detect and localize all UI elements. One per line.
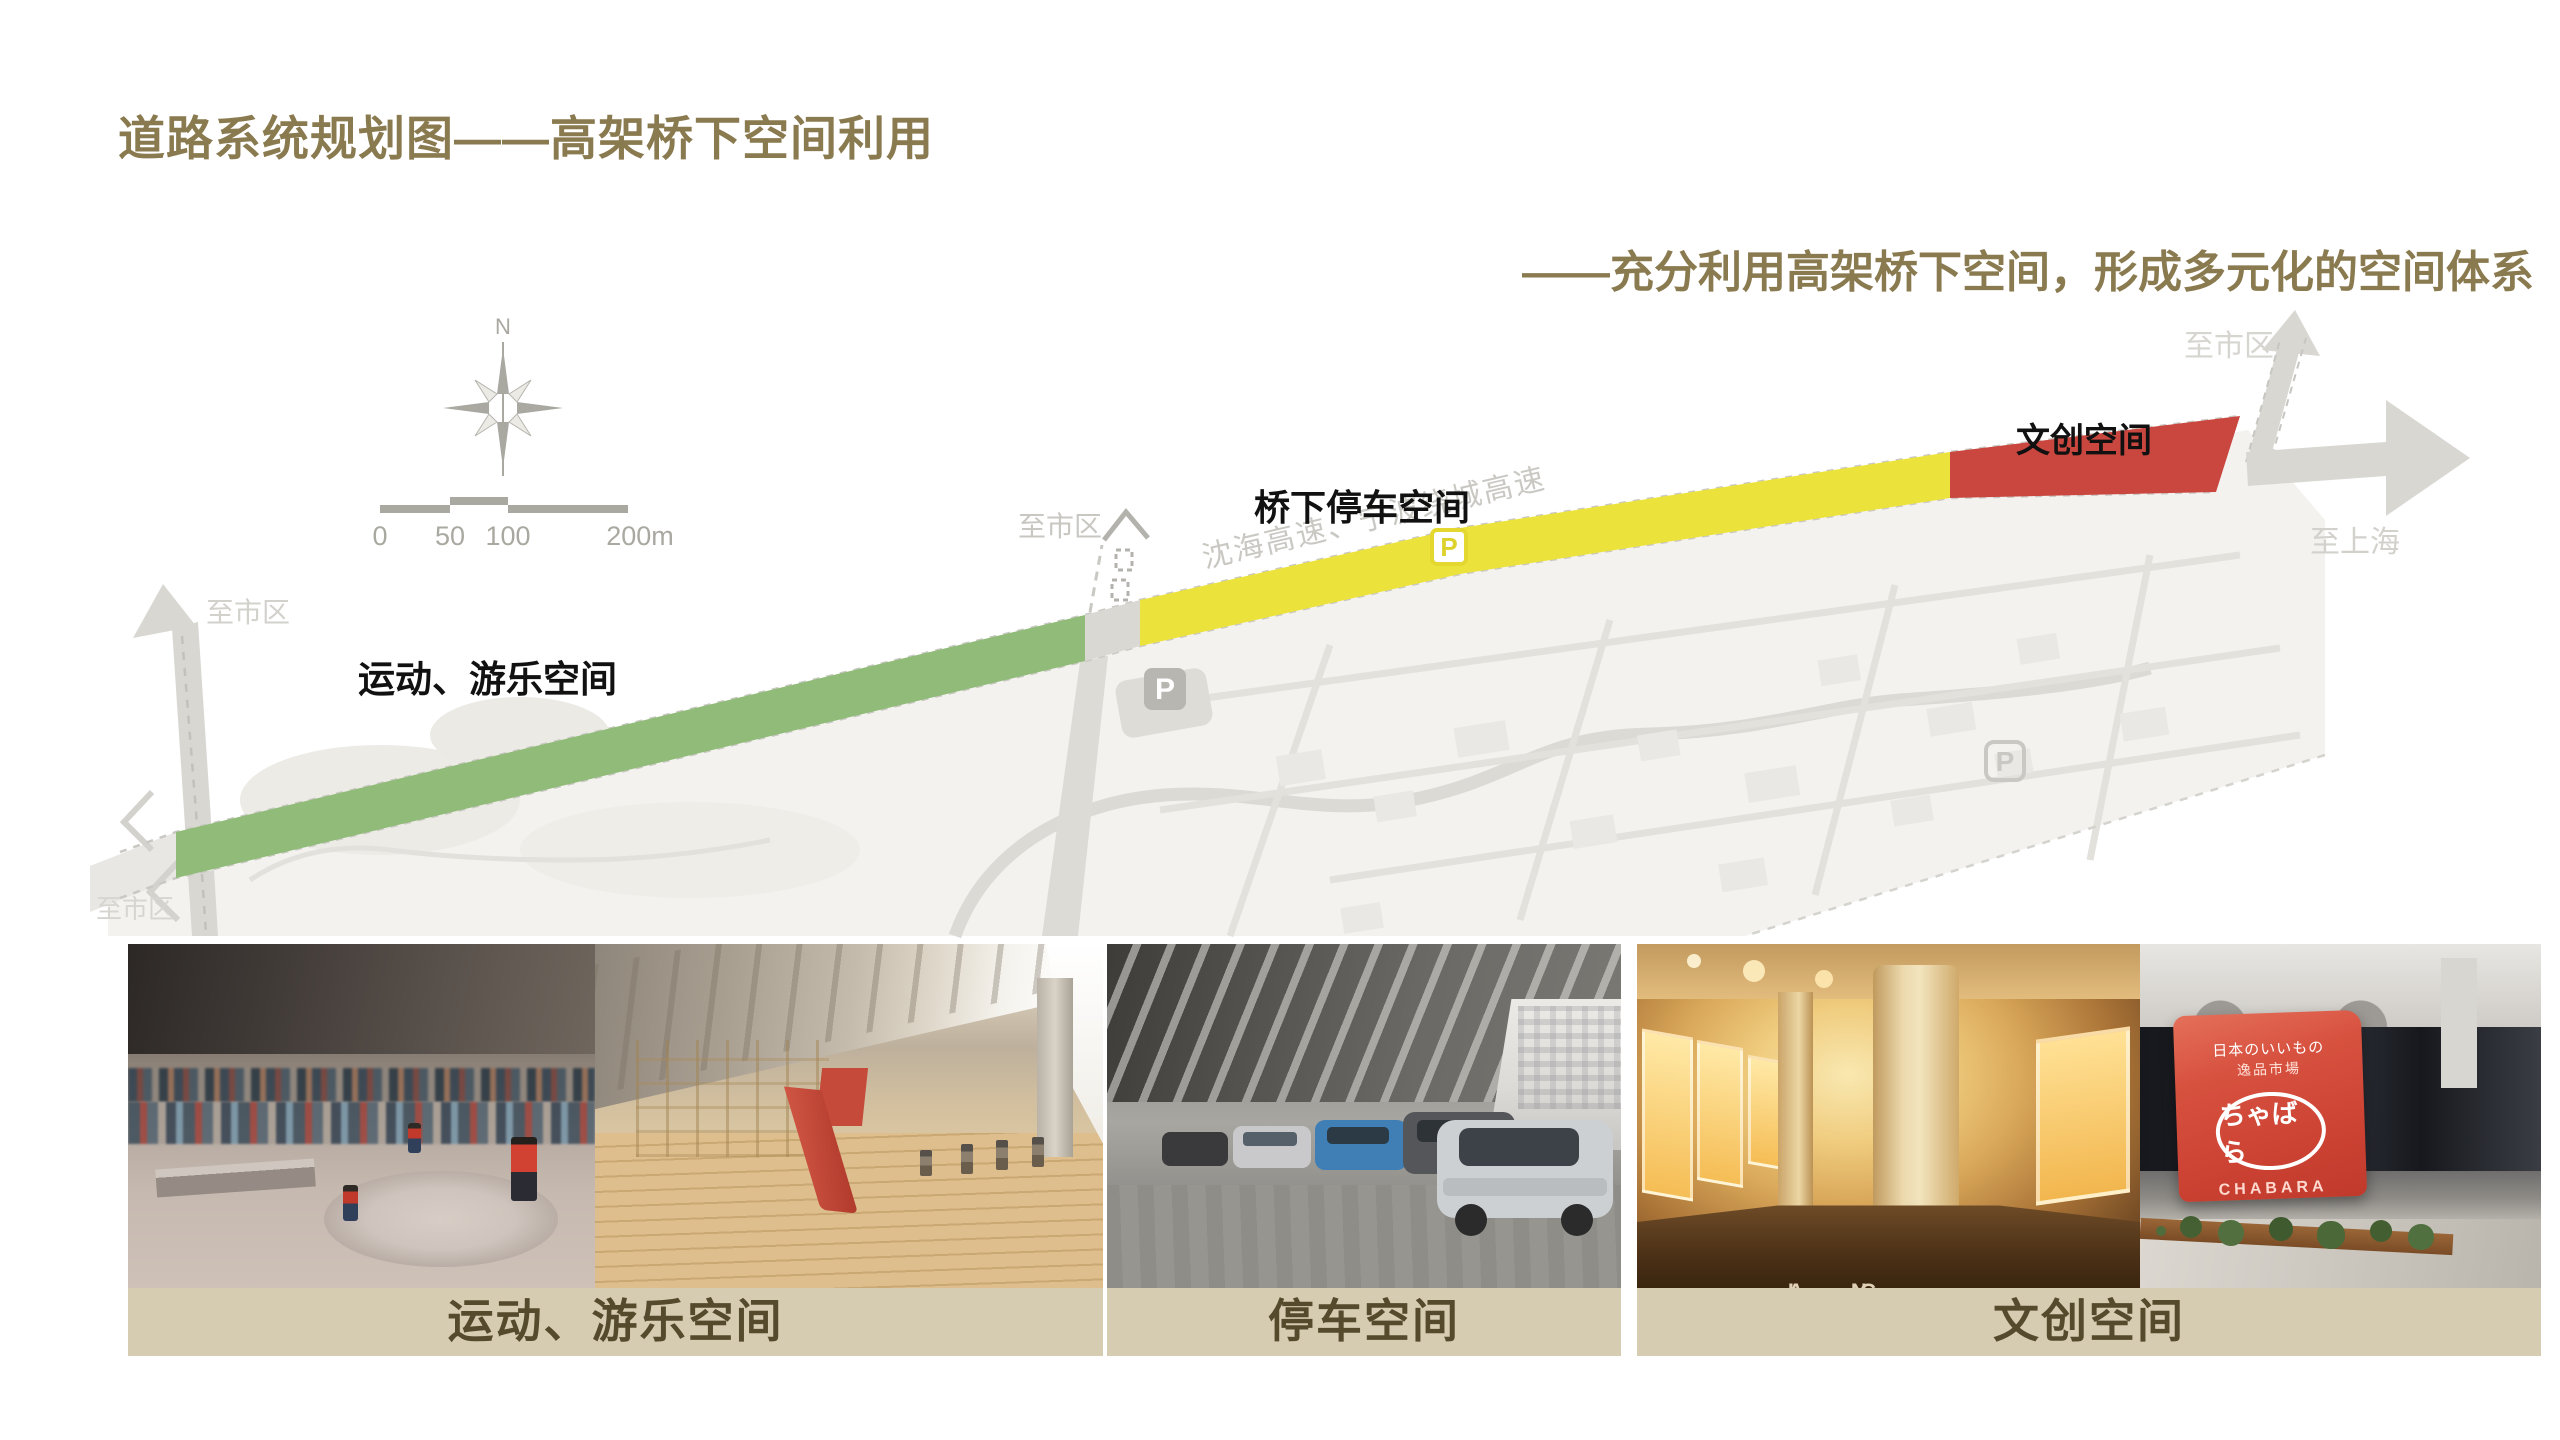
panel-parking: 停车空间: [1107, 944, 1621, 1356]
direction-label-left: 至市区: [206, 597, 290, 628]
photo-figure: [511, 1137, 537, 1201]
caption-parking: 停车空间: [1107, 1288, 1621, 1356]
photo-storefront-glow: [1697, 1040, 1743, 1188]
svg-text:200m: 200m: [606, 521, 674, 551]
label-cultural-space: 文创空间: [2016, 422, 2152, 460]
label-sport-space: 运动、游乐空间: [358, 659, 617, 700]
photo-texture: [128, 1068, 595, 1102]
svg-text:P: P: [1155, 673, 1175, 706]
panel-parking-photos: [1107, 944, 1621, 1288]
photo-figure: [1032, 1137, 1044, 1167]
direction-label-middle: 至市区: [1018, 511, 1102, 542]
photo-texture: [128, 944, 595, 1054]
photo-storefront-glow: [1642, 1029, 1693, 1202]
photo-texture: [1637, 1205, 2140, 1288]
photo-cars: [1107, 944, 1621, 1288]
direction-label-top-right: 至市区: [2184, 330, 2274, 363]
svg-text:0: 0: [372, 521, 387, 551]
photo-figure: [408, 1123, 421, 1153]
photo-column: [1778, 992, 1813, 1212]
svg-text:50: 50: [435, 521, 465, 551]
photo-storefront: 日本のいいもの 逸品市場 ちゃばら CHABARA: [2140, 944, 2541, 1288]
photo-figure: [343, 1185, 358, 1221]
svg-text:100: 100: [485, 521, 530, 551]
panel-cultural: A ·· G I ·· N 日本のいいもの 逸品市場 ちゃばら CHABARA: [1637, 944, 2541, 1356]
parking-badge-yellow: P: [1432, 530, 1466, 564]
caption-cultural: 文创空间: [1637, 1288, 2541, 1356]
sign-logo: ちゃばら: [2215, 1090, 2327, 1172]
direction-label-bottom-left: 至市区: [96, 894, 174, 924]
photo-playground: [595, 944, 1103, 1288]
panel-cultural-photos: A ·· G I ·· N 日本のいいもの 逸品市場 ちゃばら CHABARA: [1637, 944, 2541, 1288]
svg-text:P: P: [1996, 746, 2015, 777]
panel-sport: 运动、游乐空间: [128, 944, 1103, 1356]
scale-bar: 0 50 100 200m: [372, 497, 673, 551]
photo-corridor: A ·· G I ·· N: [1637, 944, 2140, 1288]
photo-figure: [961, 1144, 973, 1174]
panel-sport-photos: [128, 944, 1103, 1288]
svg-text:N: N: [495, 314, 511, 339]
direction-label-right: 至上海: [2310, 526, 2400, 559]
photo-skatepark: [128, 944, 595, 1288]
sign-brand: CHABARA: [2179, 1176, 2368, 1201]
photo-texture: [2441, 958, 2477, 1089]
compass-north-icon: N: [443, 314, 563, 476]
photo-parking-lot: [1107, 944, 1621, 1288]
label-parking-space: 桥下停车空间: [1254, 487, 1470, 528]
caption-sport: 运动、游乐空间: [128, 1288, 1103, 1356]
floor-marking-line: I ·· N: [1788, 1278, 1873, 1288]
svg-text:P: P: [1440, 532, 1457, 562]
photo-texture: [1037, 978, 1073, 1157]
photo-texture: [155, 1159, 315, 1198]
parking-badge-gray-1: P: [1144, 668, 1186, 710]
chabara-sign: 日本のいいもの 逸品市場 ちゃばら CHABARA: [2173, 1010, 2368, 1202]
photo-figure: [996, 1140, 1008, 1170]
photo-storefront-glow: [2036, 1027, 2130, 1206]
photo-figure: [920, 1150, 932, 1176]
slide: 道路系统规划图——高架桥下空间利用 ——充分利用高架桥下空间，形成多元化的空间体…: [0, 0, 2560, 1440]
